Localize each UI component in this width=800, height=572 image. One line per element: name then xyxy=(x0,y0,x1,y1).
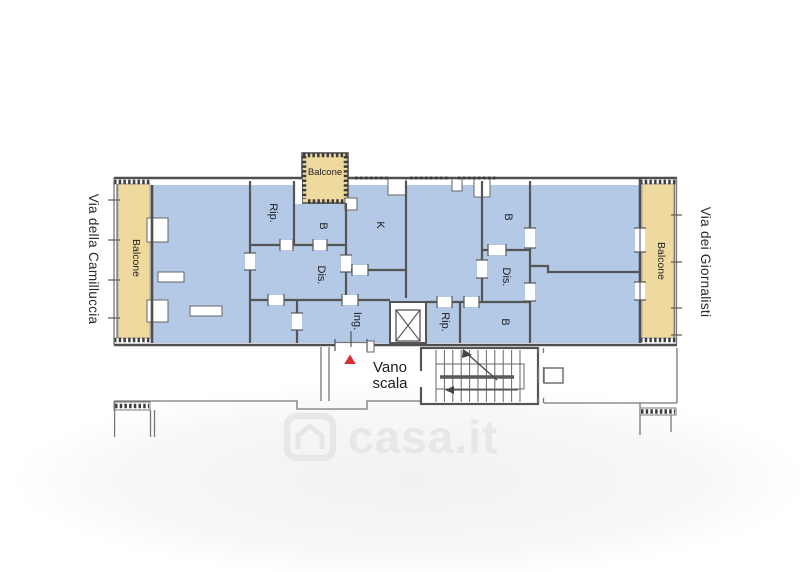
floorplan-page: casa.it xyxy=(0,0,800,572)
street-label-right: Via dei Giornalisti xyxy=(698,207,713,318)
entrance-marker-icon xyxy=(344,355,356,365)
balcony-top-label: Balcone xyxy=(308,167,342,178)
balcony-top xyxy=(295,153,348,204)
stairs xyxy=(417,348,538,404)
balcony-door-left-upper xyxy=(147,218,168,242)
balcony-door-left-lower xyxy=(147,300,168,322)
room-label-kitchen: K xyxy=(374,221,386,229)
room-label-storage-bottom: Rip. xyxy=(439,312,451,332)
room-label-entry: Ing. xyxy=(351,312,363,330)
street-label-left: Via della Camilluccia xyxy=(86,194,101,325)
watermark-text: casa.it xyxy=(348,411,498,463)
wall-pier xyxy=(190,306,222,316)
room-label-hall-right: Dis. xyxy=(500,268,512,287)
balcony-left-label: Balcone xyxy=(130,239,142,277)
floorplan-svg: casa.it xyxy=(0,0,800,572)
elevator-icon xyxy=(390,302,426,343)
radiator xyxy=(158,272,184,282)
room-label-bath-bottom: B xyxy=(499,318,511,325)
stairwell-label-line2: scala xyxy=(372,375,408,392)
room-label-hall-left: Dis. xyxy=(315,266,327,285)
stairwell-label-line1: Vano xyxy=(373,359,407,376)
room-label-bath-top: B xyxy=(317,222,329,229)
room-label-storage-top: Rip. xyxy=(267,203,279,223)
room-label-bath-mid: B xyxy=(502,213,514,220)
balcony-right-label: Balcone xyxy=(655,242,667,280)
